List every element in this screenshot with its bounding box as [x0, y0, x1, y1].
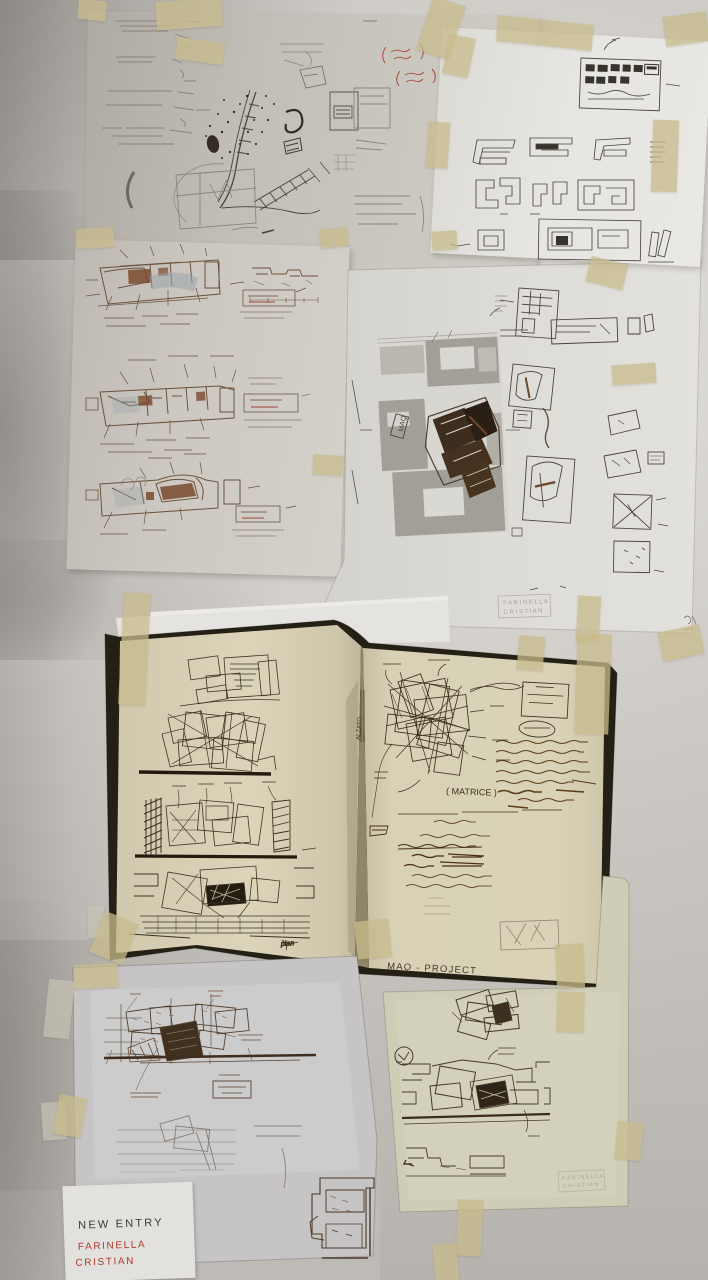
svg-text:C R I S T I A N: C R I S T I A N: [503, 608, 542, 615]
svg-text:plan: plan: [280, 940, 295, 948]
svg-text:ALZATO: ALZATO: [356, 717, 364, 740]
svg-text:( MATRICE ): ( MATRICE ): [446, 786, 497, 798]
svg-text:FARINELLA: FARINELLA: [78, 1239, 147, 1252]
svg-text:C R I S T I A N: C R I S T I A N: [563, 1182, 599, 1190]
svg-text:NEW ENTRY: NEW ENTRY: [78, 1217, 164, 1232]
svg-text:F A R I N E L L A: F A R I N E L L A: [503, 599, 548, 607]
svg-text:CRISTIAN: CRISTIAN: [75, 1256, 135, 1269]
svg-text:F A R I N E L L A: F A R I N E L L A: [562, 1174, 603, 1182]
svg-text:MAQ - PROJECT: MAQ - PROJECT: [387, 961, 477, 977]
